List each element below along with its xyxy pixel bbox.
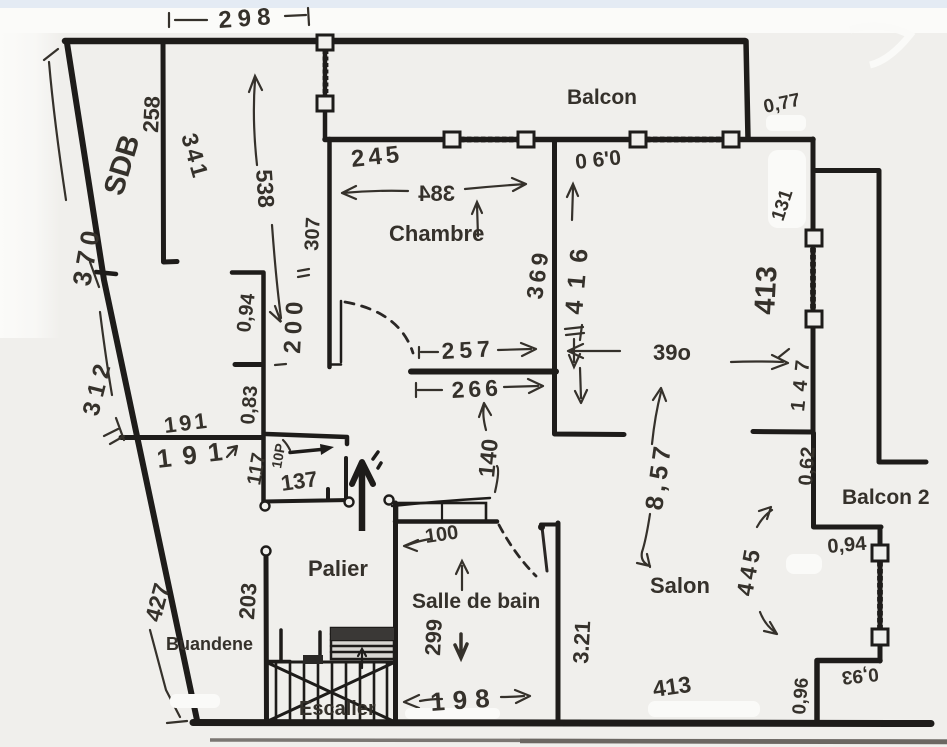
svg-text:198: 198 (429, 682, 498, 717)
svg-text:Buandene: Buandene (166, 634, 253, 654)
svg-text:100: 100 (424, 522, 460, 548)
svg-text:Palier: Palier (308, 556, 368, 581)
svg-text:0 6'0: 0 6'0 (574, 146, 622, 174)
svg-text:257: 257 (441, 335, 496, 364)
svg-text:298: 298 (218, 3, 278, 34)
svg-text:245: 245 (350, 141, 405, 173)
svg-text:413: 413 (749, 265, 783, 315)
svg-text:203: 203 (234, 582, 262, 620)
svg-text:266: 266 (451, 374, 503, 403)
svg-text:538: 538 (251, 169, 280, 209)
svg-text:307: 307 (301, 217, 325, 251)
svg-text:137: 137 (279, 466, 319, 496)
svg-text:0,83: 0,83 (237, 385, 262, 426)
svg-text:0,93: 0,93 (841, 663, 880, 688)
svg-text:Escalier: Escalier (299, 698, 376, 720)
svg-text:Balcon: Balcon (567, 86, 637, 109)
svg-text:Chambre: Chambre (389, 221, 484, 246)
svg-text:Salle de bain: Salle de bain (412, 590, 540, 613)
svg-text:Salon: Salon (650, 573, 710, 598)
svg-text:299: 299 (420, 618, 447, 656)
svg-text:258: 258 (138, 95, 165, 133)
svg-text:384: 384 (418, 181, 455, 206)
svg-text:3.21: 3.21 (568, 620, 595, 664)
svg-text:140: 140 (473, 438, 503, 479)
svg-text:0,62: 0,62 (795, 446, 820, 486)
svg-text:Balcon 2: Balcon 2 (842, 486, 930, 509)
svg-text:200: 200 (279, 295, 309, 354)
svg-text:413: 413 (651, 671, 693, 702)
svg-text:0,96: 0,96 (789, 677, 813, 716)
svg-text:0,94: 0,94 (827, 533, 869, 558)
svg-text:39o: 39o (653, 340, 691, 365)
